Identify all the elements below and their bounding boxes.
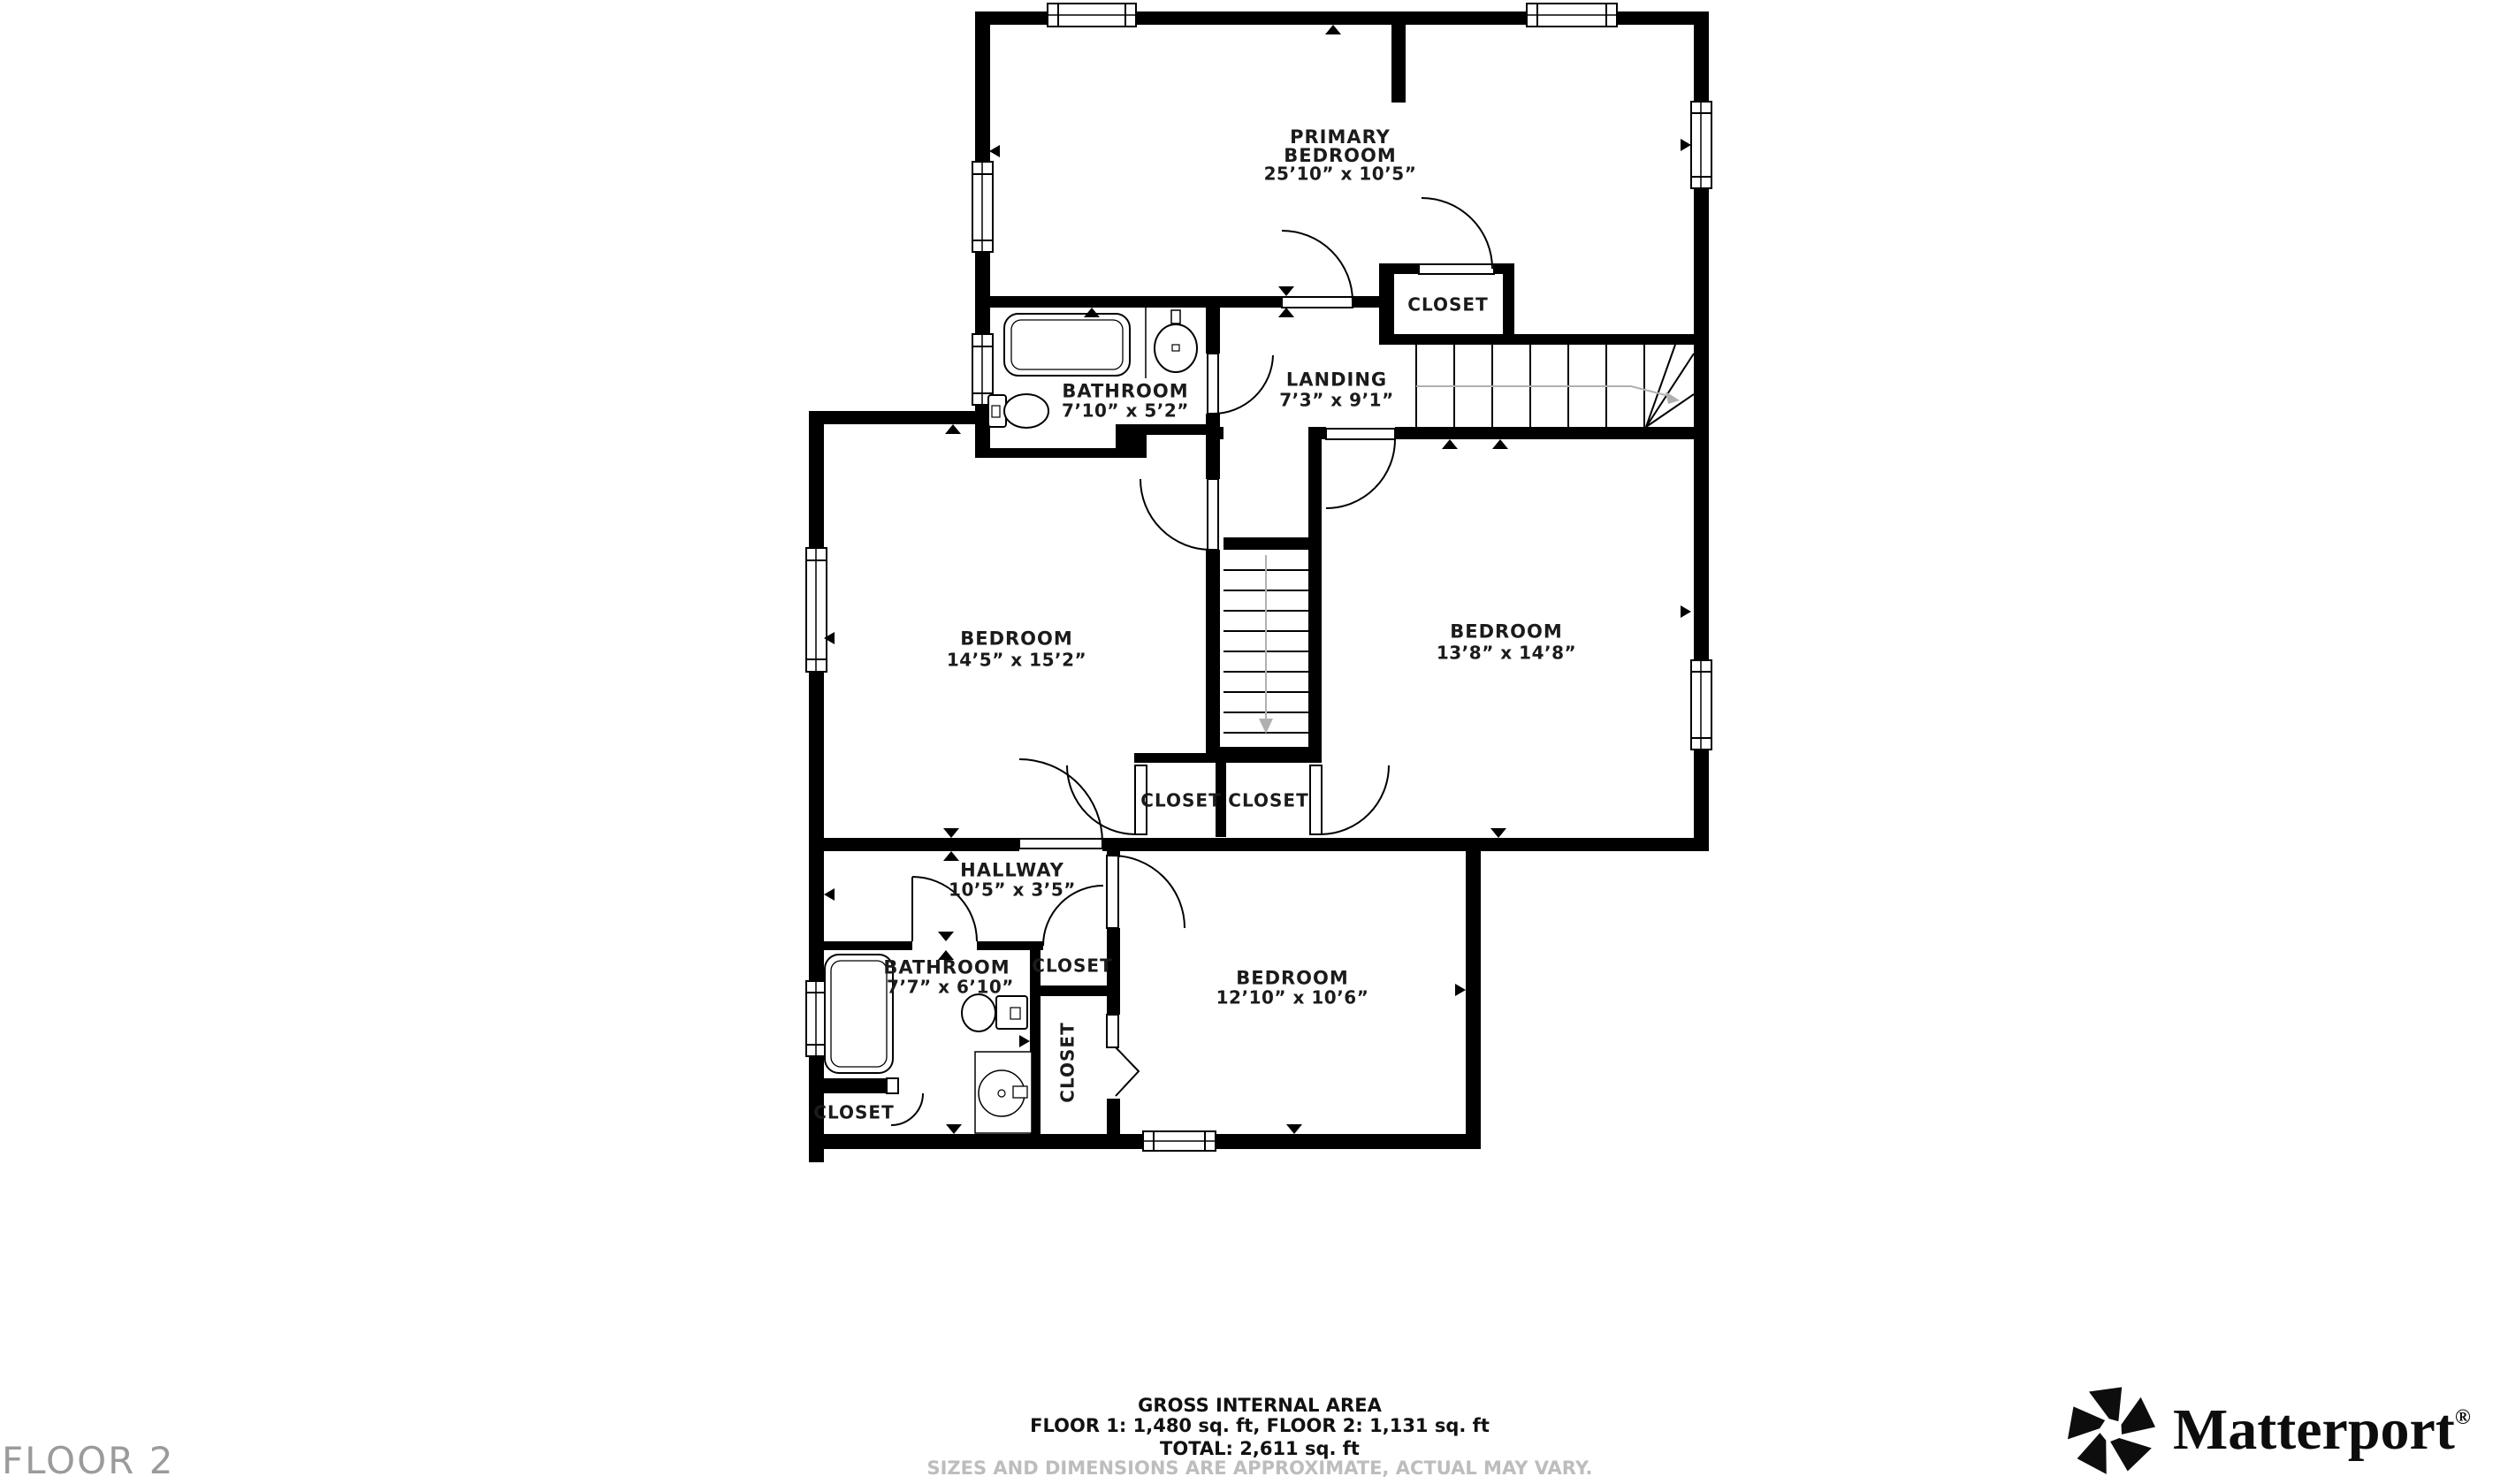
stairs-upper bbox=[1416, 345, 1694, 427]
room-label-bedroom-right: BEDROOM bbox=[1450, 623, 1563, 642]
door-arc-closet-mid-right bbox=[1320, 765, 1389, 834]
footer-gross-area: GROSS INTERNAL AREA bbox=[1138, 1395, 1382, 1416]
closet-label-mid-left: CLOSET bbox=[1140, 792, 1221, 810]
room-dims-bathroom-top: 7’10” x 5’2” bbox=[1062, 402, 1189, 421]
footer-floor-areas: FLOOR 1: 1,480 sq. ft, FLOOR 2: 1,131 sq… bbox=[1030, 1415, 1490, 1436]
toilet-bottom bbox=[962, 994, 1027, 1031]
closet-label-bottom-left: CLOSET bbox=[813, 1104, 894, 1123]
room-label-primary-bedroom: PRIMARY BEDROOM bbox=[1284, 128, 1397, 165]
room-label-bathroom-bottom: BATHROOM bbox=[883, 959, 1010, 978]
registered-mark: ® bbox=[2455, 1406, 2471, 1429]
door-arc-bathroom-top bbox=[1213, 355, 1273, 414]
room-label-bathroom-top: BATHROOM bbox=[1062, 383, 1188, 401]
door-arc-closet-bl bbox=[891, 1093, 923, 1125]
room-label-landing: LANDING bbox=[1286, 371, 1387, 390]
footer-disclaimer: SIZES AND DIMENSIONS ARE APPROXIMATE, AC… bbox=[926, 1457, 1592, 1479]
floor-label: FLOOR 2 bbox=[2, 1439, 174, 1482]
room-dims-primary-bedroom: 25’10” x 10’5” bbox=[1264, 165, 1417, 184]
room-label-bedroom-left: BEDROOM bbox=[960, 630, 1073, 649]
sink-top bbox=[1155, 310, 1197, 372]
room-dims-bedroom-bottom: 12’10” x 10’6” bbox=[1216, 989, 1369, 1008]
room-dims-hallway: 10’5” x 3’5” bbox=[949, 881, 1076, 900]
footer-total-area: TOTAL: 2,611 sq. ft bbox=[1160, 1438, 1360, 1459]
door-arc-hallway bbox=[1019, 759, 1102, 842]
closet-label-primary: CLOSET bbox=[1407, 296, 1488, 315]
floorplan-drawing bbox=[0, 0, 2508, 1484]
room-label-bedroom-bottom: BEDROOM bbox=[1236, 970, 1349, 988]
door-arc-primary-closet bbox=[1422, 198, 1492, 269]
matterport-pinwheel-icon bbox=[2065, 1382, 2157, 1478]
shower-bottom bbox=[975, 1052, 1032, 1133]
matterport-wordmark: Matterport® bbox=[2173, 1396, 2471, 1464]
bathtub-top bbox=[1004, 314, 1130, 376]
room-dims-bedroom-right: 13’8” x 14’8” bbox=[1437, 644, 1576, 663]
door-arc-bedroom-bottom bbox=[1112, 856, 1185, 928]
room-label-hallway: HALLWAY bbox=[960, 862, 1064, 880]
stairs-middle bbox=[1224, 555, 1308, 734]
door-arc-bedroom-right bbox=[1326, 439, 1395, 508]
closet-label-small: CLOSET bbox=[1032, 957, 1112, 976]
room-dims-bedroom-left: 14’5” x 15’2” bbox=[947, 651, 1086, 670]
closet-label-tall: CLOSET bbox=[1059, 1022, 1078, 1102]
room-dims-landing: 7’3” x 9’1” bbox=[1279, 392, 1393, 410]
door-arc-bedroom-left bbox=[1140, 479, 1211, 550]
floorplan-page: PRIMARY BEDROOM 25’10” x 10’5” CLOSET BA… bbox=[0, 0, 2508, 1484]
bifold-door bbox=[1116, 1047, 1139, 1096]
closet-label-mid-right: CLOSET bbox=[1228, 792, 1308, 810]
toilet-top bbox=[988, 394, 1048, 428]
matterport-logo: Matterport® bbox=[2065, 1382, 2471, 1478]
room-dims-bathroom-bottom: 7’7” x 6’10” bbox=[887, 978, 1014, 997]
door-arc-closet-mid-left bbox=[1067, 765, 1136, 834]
door-arc-primary bbox=[1282, 231, 1353, 301]
